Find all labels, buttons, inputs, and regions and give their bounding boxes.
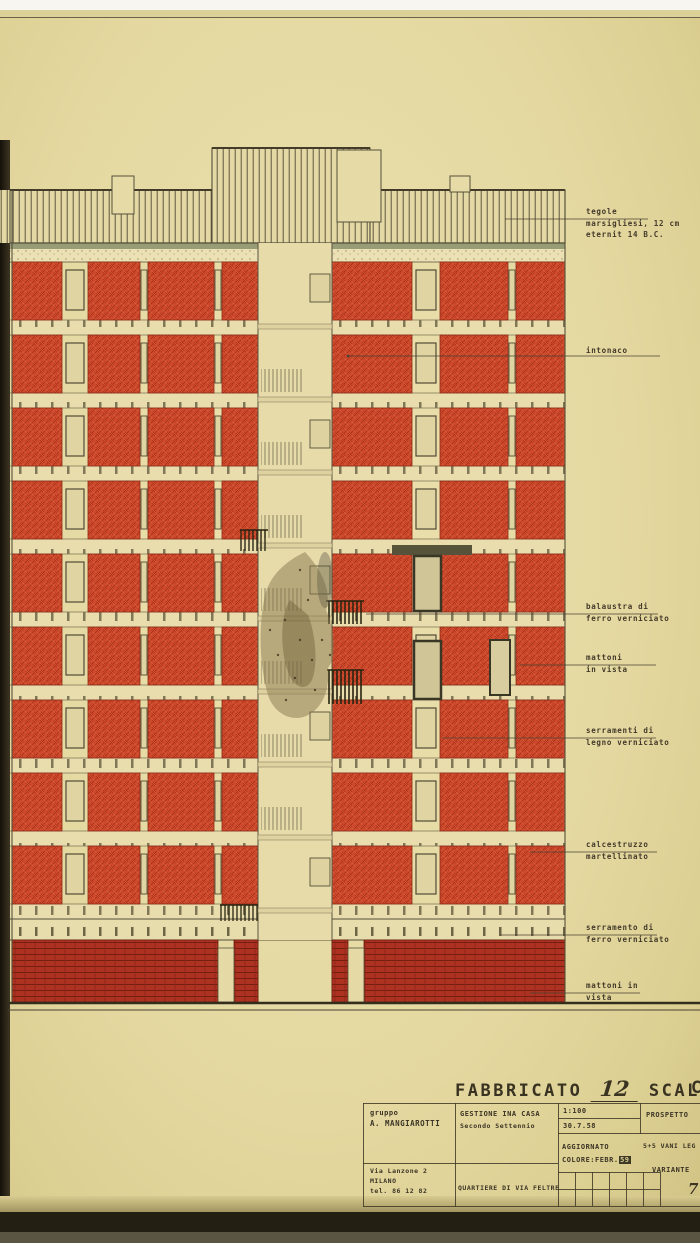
annotation-line: marsigliesi, 12 cm xyxy=(586,218,680,230)
titleblock-divider xyxy=(363,1163,558,1164)
titleblock-divider xyxy=(558,1133,700,1134)
studio-label: gruppo xyxy=(370,1108,398,1118)
architect-name: A. MANGIAROTTI xyxy=(370,1119,440,1129)
revision-grid-line xyxy=(609,1172,610,1206)
revision-grid-line xyxy=(575,1172,576,1206)
annotation-line: serramenti di xyxy=(586,725,669,737)
revision-grid-line xyxy=(592,1172,593,1206)
titleblock-border xyxy=(363,1206,700,1207)
annotation-line: mattoni xyxy=(586,652,628,664)
annotation-line: in vista xyxy=(586,664,628,676)
scale-value: 1:100 xyxy=(563,1106,587,1116)
revision-grid-line xyxy=(643,1172,644,1206)
project-subtitle: Secondo Settennio xyxy=(460,1121,535,1131)
program-note: 5+5 VANI LEG xyxy=(643,1141,696,1151)
address-street: Via Lanzone 2 xyxy=(370,1166,427,1176)
titleblock-divider xyxy=(640,1103,641,1134)
annotation-line: mattoni in xyxy=(586,980,638,992)
variant-handwritten-mark: 7 xyxy=(688,1180,698,1198)
scanned-elevation-sheet: tegole marsigliesi, 12 cm eternit 14 B.C… xyxy=(0,0,700,1243)
revision-grid-line xyxy=(626,1172,627,1206)
sheet-type: PROSPETTO xyxy=(646,1110,688,1120)
updated-year-highlight: 59 xyxy=(619,1156,631,1164)
updated-value-text: COLORE:FEBR. xyxy=(562,1156,619,1164)
annotation-line: tegole xyxy=(586,206,680,218)
annotation-plaster: intonaco xyxy=(586,345,628,357)
annotation-line: martellinato xyxy=(586,851,649,863)
annotation-line: legno verniciato xyxy=(586,737,669,749)
annotation-roof-tiles: tegole marsigliesi, 12 cm eternit 14 B.C… xyxy=(586,206,680,241)
annotation-iron-frame: serramento di ferro verniciato xyxy=(586,922,669,945)
titleblock-divider xyxy=(558,1118,640,1119)
annotation-line: ferro verniciato xyxy=(586,613,669,625)
annotation-line: balaustra di xyxy=(586,601,669,613)
address-city: MILANO xyxy=(370,1176,396,1186)
annotation-exposed-brick: mattoni in vista xyxy=(586,652,628,675)
annotation-line: intonaco xyxy=(586,345,628,357)
titleblock-divider xyxy=(455,1103,456,1207)
annotation-line: calcestruzzo xyxy=(586,839,649,851)
date-value: 30.7.58 xyxy=(563,1121,596,1131)
stair-letter: C xyxy=(691,1078,700,1098)
project-name: GESTIONE INA CASA xyxy=(460,1109,540,1119)
annotation-line: serramento di xyxy=(586,922,669,934)
updated-label: AGGIORNATO xyxy=(562,1142,609,1152)
titleblock-border xyxy=(363,1103,364,1207)
sheet-title: FABBRICATO 12 SCALA C xyxy=(455,1076,700,1102)
revision-grid-line xyxy=(660,1172,661,1206)
annotation-line: ferro verniciato xyxy=(586,934,669,946)
annotation-line: vista xyxy=(586,992,638,1004)
titleblock-border xyxy=(363,1103,700,1104)
district-name: QUARTIERE DI VIA FELTRE xyxy=(458,1183,560,1193)
annotation-concrete: calcestruzzo martellinato xyxy=(586,839,649,862)
annotation-wood-frames: serramenti di legno verniciato xyxy=(586,725,669,748)
annotation-exposed-brick-base: mattoni in vista xyxy=(586,980,638,1003)
annotation-balustrade: balaustra di ferro verniciato xyxy=(586,601,669,624)
sheet-title-word: FABBRICATO xyxy=(455,1081,582,1101)
building-number-handwritten: 12 xyxy=(591,1076,641,1102)
annotation-line: eternit 14 B.C. xyxy=(586,229,680,241)
updated-value: COLORE:FEBR.59 xyxy=(562,1155,631,1165)
variant-label: VARIANTE xyxy=(652,1165,690,1175)
address-phone: tel. 86 12 82 xyxy=(370,1186,427,1196)
